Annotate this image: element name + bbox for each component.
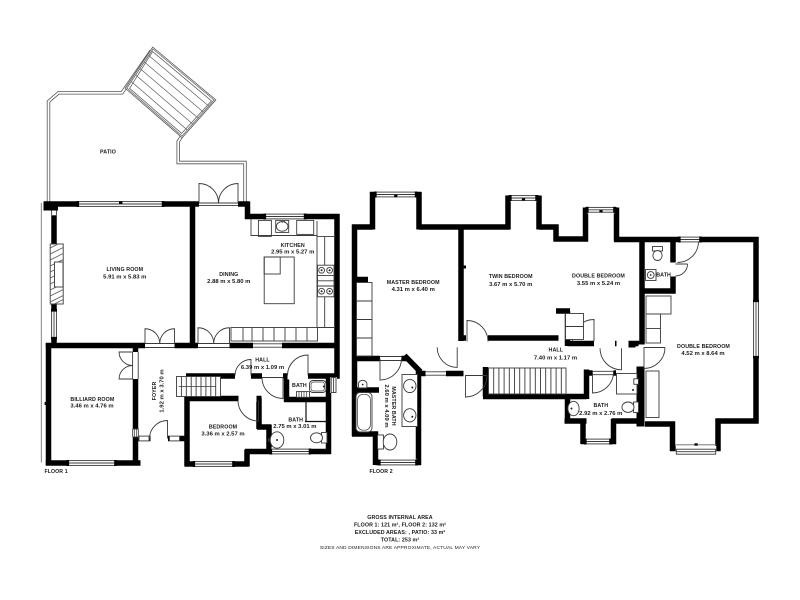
svg-text:BATH: BATH xyxy=(292,383,307,389)
svg-text:BATH: BATH xyxy=(288,417,303,423)
svg-text:HALL: HALL xyxy=(549,348,564,354)
svg-text:2.75 m x 3.01 m: 2.75 m x 3.01 m xyxy=(273,424,316,430)
svg-text:BATH: BATH xyxy=(656,272,671,278)
svg-text:MASTER BATH: MASTER BATH xyxy=(390,386,396,425)
svg-text:FLOOR 1: FLOOR 1 xyxy=(45,469,68,475)
svg-text:7.40 m x 1.17 m: 7.40 m x 1.17 m xyxy=(534,356,577,362)
svg-text:3.36 m x 2.57 m: 3.36 m x 2.57 m xyxy=(201,432,244,438)
svg-text:3.46 m x 4.76 m: 3.46 m x 4.76 m xyxy=(70,404,113,410)
svg-text:5.91 m x 5.83 m: 5.91 m x 5.83 m xyxy=(103,275,146,281)
svg-text:6.39 m x 1.09 m: 6.39 m x 1.09 m xyxy=(241,365,284,371)
svg-text:2.92 m x 2.76 m: 2.92 m x 2.76 m xyxy=(579,411,622,417)
svg-text:1.92 m x 3.70 m: 1.92 m x 3.70 m xyxy=(160,369,166,412)
svg-text:DOUBLE BEDROOM: DOUBLE BEDROOM xyxy=(572,274,625,280)
svg-text:2.60 m x 4.09 m: 2.60 m x 4.09 m xyxy=(383,384,389,427)
svg-text:2.88 m x 5.80 m: 2.88 m x 5.80 m xyxy=(207,279,250,285)
svg-text:LIVING ROOM: LIVING ROOM xyxy=(106,267,143,273)
svg-text:FLOOR 1: 121 m², FLOOR 2: 132: FLOOR 1: 121 m², FLOOR 2: 132 m² xyxy=(354,522,446,528)
svg-text:GROSS INTERNAL AREA: GROSS INTERNAL AREA xyxy=(367,515,433,521)
svg-text:FLOOR 2: FLOOR 2 xyxy=(370,469,393,475)
svg-text:4.31 m x 6.40 m: 4.31 m x 6.40 m xyxy=(392,287,435,293)
svg-text:HALL: HALL xyxy=(255,358,270,364)
svg-text:2.95 m x 5.27 m: 2.95 m x 5.27 m xyxy=(271,250,314,256)
svg-text:3.67 m x 5.70 m: 3.67 m x 5.70 m xyxy=(489,282,532,288)
svg-text:3.55 m x 5.24 m: 3.55 m x 5.24 m xyxy=(577,281,620,287)
svg-text:PATIO: PATIO xyxy=(100,150,116,156)
svg-text:DINING: DINING xyxy=(219,272,238,278)
svg-text:FOYER: FOYER xyxy=(152,382,158,401)
svg-text:EXCLUDED AREAS: , PATIO: 33 m²: EXCLUDED AREAS: , PATIO: 33 m² xyxy=(355,530,446,536)
svg-text:KITCHEN: KITCHEN xyxy=(281,243,305,249)
svg-text:TWIN BEDROOM: TWIN BEDROOM xyxy=(489,274,533,280)
svg-text:TOTAL: 253 m²: TOTAL: 253 m² xyxy=(381,537,420,543)
svg-text:BATH: BATH xyxy=(593,403,608,409)
svg-text:SIZES AND DIMENSIONS ARE APPRO: SIZES AND DIMENSIONS ARE APPROXIMATE, AC… xyxy=(320,545,481,551)
svg-text:BILLIARD ROOM: BILLIARD ROOM xyxy=(70,397,114,403)
svg-text:MASTER BEDROOM: MASTER BEDROOM xyxy=(387,280,440,286)
svg-text:BEDROOM: BEDROOM xyxy=(209,425,238,431)
svg-text:DOUBLE BEDROOM: DOUBLE BEDROOM xyxy=(677,344,730,350)
svg-text:4.52 m x 8.64 m: 4.52 m x 8.64 m xyxy=(681,351,724,357)
